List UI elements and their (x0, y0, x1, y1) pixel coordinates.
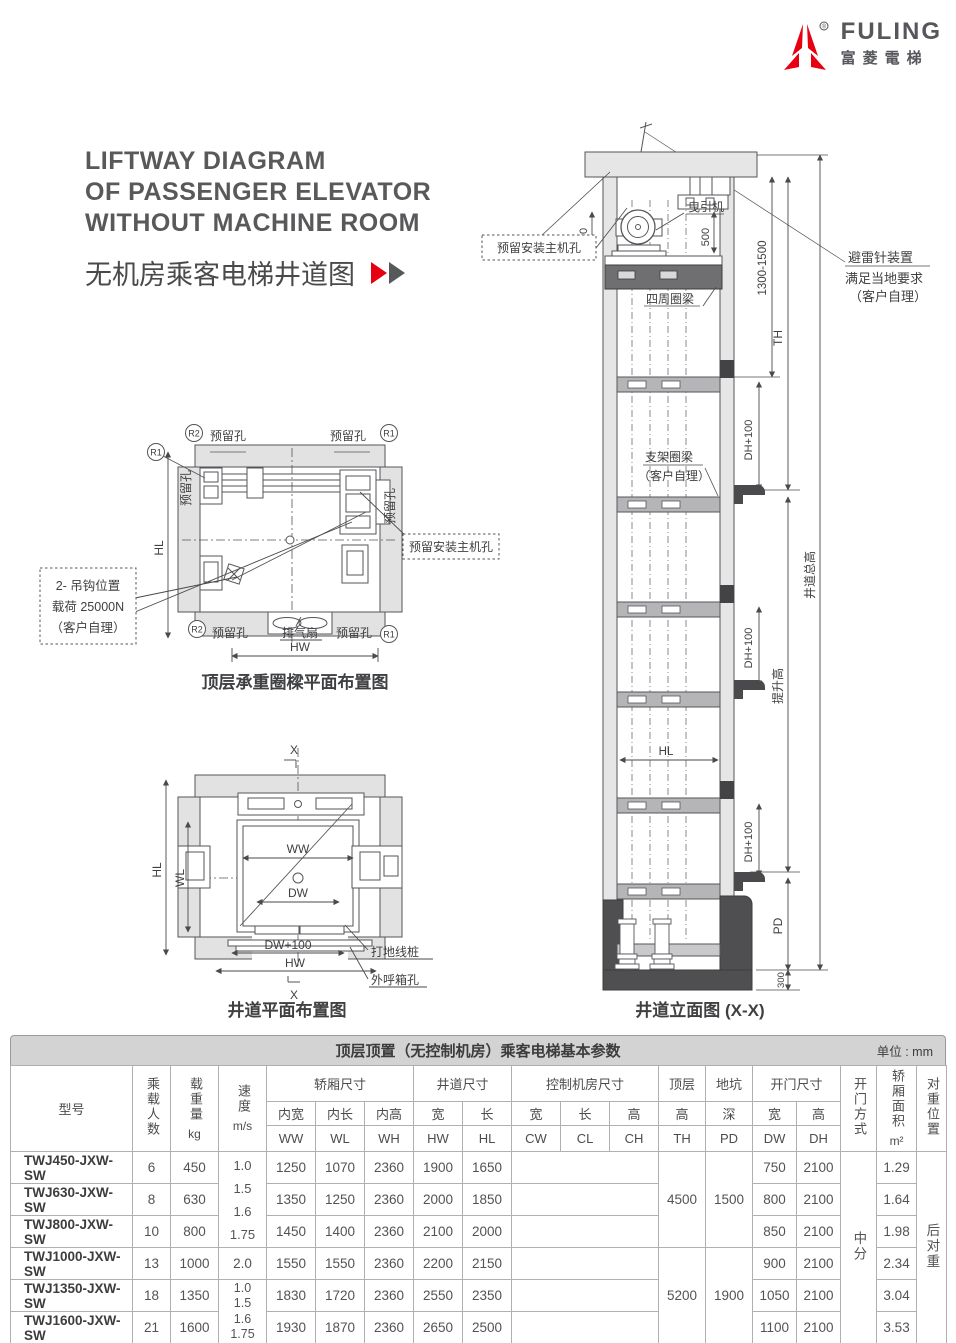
col-ctrl-w: 宽 (512, 1102, 561, 1126)
cell-hw: 2200 (414, 1248, 463, 1280)
cell-wl: 1870 (316, 1312, 365, 1343)
r1-marker-left: R1 (150, 448, 162, 458)
col-door-w: 宽 (753, 1102, 797, 1126)
hole-label-tl: 预留孔 (210, 429, 246, 443)
hole-label-br: 预留孔 (336, 626, 372, 640)
hook-note-line2: 载荷 25000N (52, 600, 124, 614)
cell-wl: 1250 (316, 1184, 365, 1216)
cell-th-group2: 5200 (659, 1248, 706, 1343)
cell-hl: 2150 (463, 1248, 512, 1280)
cell-ww: 1250 (267, 1152, 316, 1184)
lightning-note-line1: 避雷针装置 (848, 250, 913, 265)
col-car-w: 内宽 (267, 1102, 316, 1126)
dim-hl-elevation: HL (659, 746, 674, 758)
ground-stake-label: 打地线桩 (371, 944, 419, 959)
hl-dim-label: HL (152, 540, 166, 556)
dim-dh100-1: DH+100 (743, 420, 755, 461)
col-persons: 乘载人数 (133, 1066, 171, 1152)
cell-persons: 13 (133, 1248, 171, 1280)
table-row: TWJ630-JXW-SW 8 630 1350 1250 2360 2000 … (11, 1184, 947, 1216)
col-model: 型号 (11, 1066, 133, 1152)
col-door-type: 开门方式 (841, 1066, 877, 1152)
cell-area: 1.98 (877, 1216, 917, 1248)
ring-beam-label: 四周圈梁 (646, 291, 694, 306)
cell-ctrl-empty (512, 1312, 659, 1343)
cell-dw: 1050 (753, 1280, 797, 1312)
elevation-caption: 井道立面图 (X-X) (635, 1000, 764, 1020)
cell-dw: 900 (753, 1248, 797, 1280)
cell-ww: 1450 (267, 1216, 316, 1248)
r1-marker-bottom: R1 (383, 630, 395, 640)
dim-th: TH (771, 330, 785, 346)
col-pit: 地坑 (706, 1066, 753, 1102)
cell-wh: 2360 (365, 1312, 414, 1343)
plan-machine-hole-callout: 预留安装主机孔 (403, 534, 499, 559)
cell-dh: 2100 (797, 1216, 841, 1248)
group-door-size: 开门尺寸 (753, 1066, 841, 1102)
cell-speed-group2: 1.0 1.5 1.6 1.75 (219, 1280, 267, 1343)
cell-area: 2.34 (877, 1248, 917, 1280)
col-car-area: 轿厢面积m² (877, 1066, 917, 1152)
cell-persons: 10 (133, 1216, 171, 1248)
table-row: TWJ1350-JXW-SW 18 1350 1.0 1.5 1.6 1.75 … (11, 1280, 947, 1312)
hw-dim-label2: HW (285, 956, 306, 970)
table-row: TWJ1600-JXW-SW 21 1600 1930 1870 2360 26… (11, 1312, 947, 1343)
cell-model: TWJ800-JXW-SW (11, 1216, 133, 1248)
dim-total-height: 井道总高 (802, 551, 817, 599)
group-car-size: 轿厢尺寸 (267, 1066, 414, 1102)
cell-hw: 2550 (414, 1280, 463, 1312)
cell-load: 1350 (171, 1280, 219, 1312)
col-shaft-l: 长 (463, 1102, 512, 1126)
plan-top-drawing (163, 445, 402, 642)
cell-dh: 2100 (797, 1280, 841, 1312)
cell-hl: 2500 (463, 1312, 512, 1343)
support-beam-label2: （客户自理） (638, 468, 710, 483)
dim-dh100-3: DH+100 (743, 822, 755, 863)
ww-dim-label: WW (287, 842, 310, 856)
support-beam-label1: 支架圈梁 (645, 449, 693, 464)
spec-table: 型号 乘载人数 载重量kg 速度m/s 轿厢尺寸 井道尺寸 控制机房尺寸 顶层 … (10, 1065, 947, 1343)
cell-model: TWJ1000-JXW-SW (11, 1248, 133, 1280)
plan-machine-hole-label: 预留安装主机孔 (409, 539, 493, 554)
cell-door-type: 中分 (841, 1152, 877, 1343)
hook-note-line3: （客户自理） (50, 620, 125, 635)
cell-dw: 1100 (753, 1312, 797, 1343)
hole-label-left: 预留孔 (179, 470, 193, 506)
dw100-dim-label: DW+100 (264, 938, 311, 952)
hole-label-right: 预留孔 (383, 488, 397, 524)
hw-dim-label: HW (290, 640, 311, 654)
table-title: 顶层顶置（无控制机房）乘客电梯基本参数 (11, 1040, 945, 1061)
cell-wh: 2360 (365, 1280, 414, 1312)
dim-1300-1500: 1300-1500 (757, 241, 769, 296)
cell-wh: 2360 (365, 1152, 414, 1184)
section-x-top: X (290, 743, 298, 757)
cell-ctrl-empty (512, 1184, 659, 1216)
cell-load: 1600 (171, 1312, 219, 1343)
cell-ww: 1830 (267, 1280, 316, 1312)
hole-label-bl: 预留孔 (212, 626, 248, 640)
hole-label-tr: 预留孔 (330, 429, 366, 443)
cell-persons: 21 (133, 1312, 171, 1343)
col-shaft-w: 宽 (414, 1102, 463, 1126)
col-car-l: 内长 (316, 1102, 365, 1126)
spec-table-section: 顶层顶置（无控制机房）乘客电梯基本参数 单位 : mm 型号 乘载人数 载重量k… (10, 1035, 946, 1343)
cell-th-group1: 4500 (659, 1152, 706, 1248)
col-load: 载重量kg (171, 1066, 219, 1152)
cell-wl: 1400 (316, 1216, 365, 1248)
cell-dw: 800 (753, 1184, 797, 1216)
cell-ctrl-empty (512, 1216, 659, 1248)
dim-300: 300 (776, 972, 787, 988)
col-top-floor: 顶层 (659, 1066, 706, 1102)
col-ww: WW (267, 1126, 316, 1152)
cell-hw: 2100 (414, 1216, 463, 1248)
cell-ctrl-empty (512, 1152, 659, 1184)
dim-500-right: 500 (700, 228, 712, 246)
cell-wh: 2360 (365, 1216, 414, 1248)
cell-hl: 1850 (463, 1184, 512, 1216)
cell-cwt: 后对重 (917, 1152, 947, 1343)
plan-top-caption: 顶层承重圈樑平面布置图 (202, 672, 389, 692)
dim-dh100-2: DH+100 (743, 628, 755, 669)
group-ctrl-room: 控制机房尺寸 (512, 1066, 659, 1102)
table-row: TWJ1000-JXW-SW 13 1000 2.0 1550 1550 236… (11, 1248, 947, 1280)
cell-area: 1.29 (877, 1152, 917, 1184)
cell-load: 630 (171, 1184, 219, 1216)
cell-hl: 2350 (463, 1280, 512, 1312)
cell-ctrl-empty (512, 1248, 659, 1280)
cell-wl: 1550 (316, 1248, 365, 1280)
col-top-h: 高 (659, 1102, 706, 1126)
cell-dh: 2100 (797, 1152, 841, 1184)
cell-ww: 1550 (267, 1248, 316, 1280)
cell-area: 1.64 (877, 1184, 917, 1216)
col-ctrl-l: 长 (561, 1102, 610, 1126)
lightning-note-line3: （客户自理） (849, 289, 927, 304)
col-speed: 速度m/s (219, 1066, 267, 1152)
plan-bottom-caption: 井道平面布置图 (228, 1000, 347, 1020)
r1-marker-top: R1 (383, 429, 395, 439)
cell-dh: 2100 (797, 1312, 841, 1343)
dim-lift-height: 提升高 (770, 668, 785, 704)
page: ® FULING 富菱電梯 LIFTWAY DIAGRAM OF PASSENG… (0, 0, 956, 1343)
col-th: TH (659, 1126, 706, 1152)
cell-pd-group1: 1500 (706, 1152, 753, 1248)
cell-hl: 1650 (463, 1152, 512, 1184)
cell-ww: 1930 (267, 1312, 316, 1343)
call-box-label: 外呼箱孔 (371, 972, 419, 987)
cell-model: TWJ450-JXW-SW (11, 1152, 133, 1184)
col-ch: CH (610, 1126, 659, 1152)
cell-persons: 8 (133, 1184, 171, 1216)
section-x-bottom: X (290, 988, 298, 1002)
cell-wh: 2360 (365, 1184, 414, 1216)
col-hw: HW (414, 1126, 463, 1152)
table-row: TWJ450-JXW-SW 6 450 1.0 1.5 1.6 1.75 125… (11, 1152, 947, 1184)
cell-hw: 1900 (414, 1152, 463, 1184)
hook-callout: 2- 吊钩位置 载荷 25000N （客户自理） (40, 568, 136, 644)
hook-note-line1: 2- 吊钩位置 (56, 578, 121, 593)
col-dw: DW (753, 1126, 797, 1152)
dw-dim-label: DW (288, 886, 309, 900)
col-cwt-position: 对重位置 (917, 1066, 947, 1152)
cell-model: TWJ630-JXW-SW (11, 1184, 133, 1216)
lightning-note-line2: 满足当地要求 (845, 271, 923, 286)
drawings-svg: R2 预留孔 预留孔 R1 R1 预留孔 预留孔 HL R2 预留孔 排气扇 预… (0, 0, 956, 1035)
cell-model: TWJ1600-JXW-SW (11, 1312, 133, 1343)
cell-pd-group2: 1900 (706, 1248, 753, 1343)
col-dh: DH (797, 1126, 841, 1152)
cell-hl: 2000 (463, 1216, 512, 1248)
cell-ww: 1350 (267, 1184, 316, 1216)
cell-area: 3.04 (877, 1280, 917, 1312)
group-shaft-size: 井道尺寸 (414, 1066, 512, 1102)
table-unit: 单位 : mm (877, 1041, 933, 1060)
col-wl: WL (316, 1126, 365, 1152)
col-cw: CW (512, 1126, 561, 1152)
col-door-h: 高 (797, 1102, 841, 1126)
table-title-bar: 顶层顶置（无控制机房）乘客电梯基本参数 单位 : mm (10, 1035, 946, 1065)
r2-marker: R2 (188, 429, 200, 439)
cell-speed-group1: 1.0 1.5 1.6 1.75 (219, 1152, 267, 1248)
elevation-machine-hole-callout: 预留安装主机孔 (482, 235, 596, 260)
traction-machine-label: 曳引机 (688, 200, 724, 214)
cell-wl: 1720 (316, 1280, 365, 1312)
col-car-h: 内高 (365, 1102, 414, 1126)
cell-hw: 2000 (414, 1184, 463, 1216)
cell-ctrl-empty (512, 1280, 659, 1312)
col-wh: WH (365, 1126, 414, 1152)
cell-dw: 850 (753, 1216, 797, 1248)
cell-dw: 750 (753, 1152, 797, 1184)
cell-wh: 2360 (365, 1248, 414, 1280)
cell-model: TWJ1350-JXW-SW (11, 1280, 133, 1312)
cell-load: 1000 (171, 1248, 219, 1280)
cell-load: 800 (171, 1216, 219, 1248)
col-hl: HL (463, 1126, 512, 1152)
fan-label: 排气扇 (282, 625, 318, 640)
cell-dh: 2100 (797, 1248, 841, 1280)
col-cl: CL (561, 1126, 610, 1152)
cell-persons: 6 (133, 1152, 171, 1184)
elevation-machine-hole-label: 预留安装主机孔 (497, 240, 581, 255)
table-row: TWJ800-JXW-SW 10 800 1450 1400 2360 2100… (11, 1216, 947, 1248)
cell-wl: 1070 (316, 1152, 365, 1184)
cell-persons: 18 (133, 1280, 171, 1312)
col-pit-d: 深 (706, 1102, 753, 1126)
cell-load: 450 (171, 1152, 219, 1184)
cell-area: 3.53 (877, 1312, 917, 1343)
cell-speed: 2.0 (219, 1248, 267, 1280)
r2-marker-bottom: R2 (191, 625, 203, 635)
wl-dim-label: WL (173, 869, 187, 887)
hl-dim-label2: HL (150, 862, 164, 878)
cell-dh: 2100 (797, 1184, 841, 1216)
col-pd: PD (706, 1126, 753, 1152)
dim-pd: PD (771, 917, 785, 934)
col-ctrl-h: 高 (610, 1102, 659, 1126)
cell-hw: 2650 (414, 1312, 463, 1343)
